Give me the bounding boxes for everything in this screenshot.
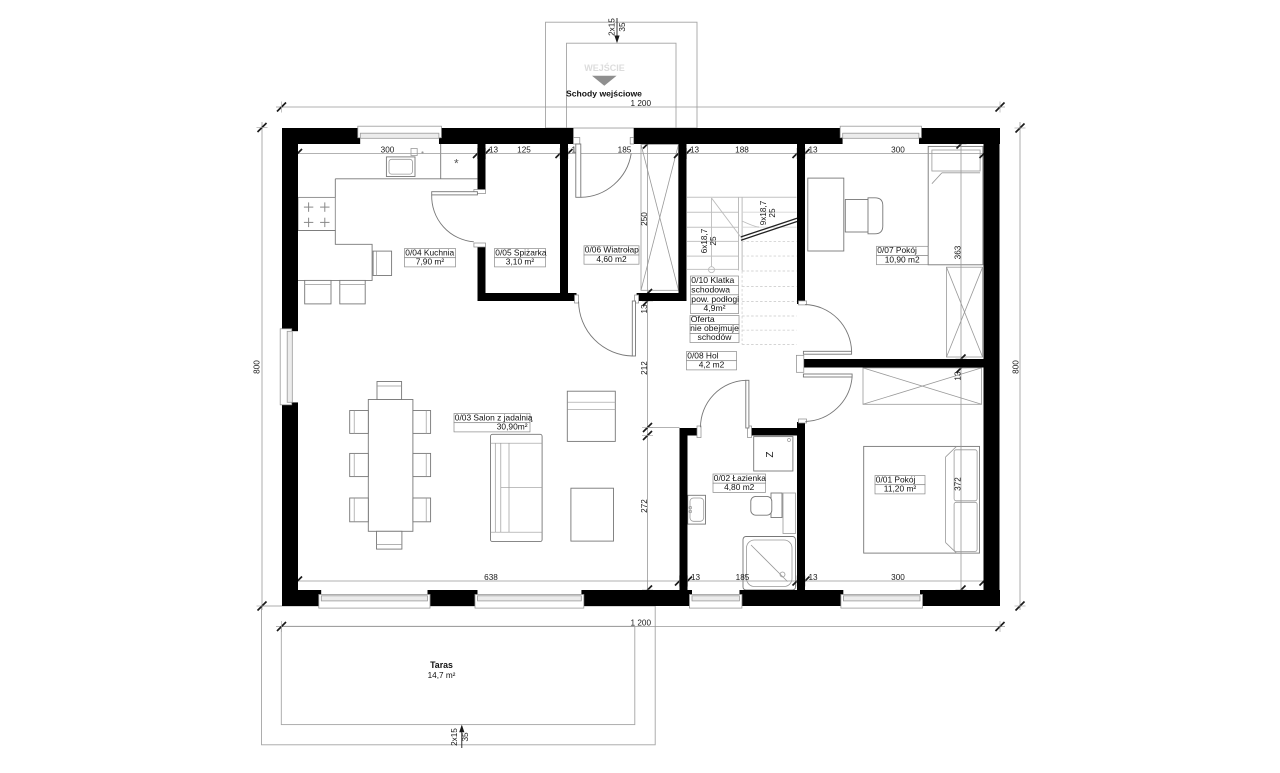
- svg-text:188: 188: [735, 146, 749, 155]
- svg-text:272: 272: [640, 499, 649, 513]
- svg-text:4,9m²: 4,9m²: [704, 303, 726, 313]
- svg-text:3,10 m²: 3,10 m²: [506, 257, 535, 267]
- svg-text:WEJŚCIE: WEJŚCIE: [584, 62, 625, 73]
- svg-text:638: 638: [484, 573, 498, 582]
- svg-text:7,90 m²: 7,90 m²: [416, 257, 445, 267]
- svg-text:9x18,7: 9x18,7: [759, 200, 768, 225]
- svg-text:800: 800: [1011, 360, 1020, 374]
- svg-text:212: 212: [640, 361, 649, 375]
- svg-text:300: 300: [891, 146, 905, 155]
- svg-text:185: 185: [736, 573, 750, 582]
- svg-text:Taras: Taras: [430, 660, 453, 670]
- svg-text:13: 13: [489, 146, 499, 155]
- svg-text:13: 13: [953, 371, 962, 381]
- svg-text:1 200: 1 200: [631, 99, 652, 108]
- svg-text:300: 300: [891, 573, 905, 582]
- svg-text:125: 125: [517, 146, 531, 155]
- svg-text:*: *: [454, 157, 459, 171]
- svg-text:250: 250: [640, 212, 649, 226]
- svg-text:25: 25: [768, 208, 777, 218]
- svg-text:14,7 m²: 14,7 m²: [428, 671, 456, 680]
- svg-text:4,80 m2: 4,80 m2: [724, 482, 755, 492]
- svg-text:30,90m²: 30,90m²: [497, 422, 528, 432]
- svg-text:11,20 m²: 11,20 m²: [884, 484, 917, 494]
- svg-text:13: 13: [809, 573, 819, 582]
- svg-text:13: 13: [640, 304, 649, 314]
- svg-text:10,90 m2: 10,90 m2: [885, 254, 920, 264]
- svg-text:Schody wejściowe: Schody wejściowe: [566, 88, 642, 98]
- svg-text:35: 35: [461, 732, 470, 742]
- svg-text:13: 13: [691, 573, 701, 582]
- svg-text:2x15: 2x15: [608, 18, 617, 36]
- svg-text:372: 372: [953, 477, 962, 491]
- svg-text:1 200: 1 200: [631, 619, 652, 628]
- svg-text:4,2 m2: 4,2 m2: [699, 360, 725, 370]
- svg-text:300: 300: [381, 146, 395, 155]
- svg-text:Z: Z: [765, 451, 776, 457]
- svg-text:25: 25: [709, 236, 718, 246]
- svg-text:35: 35: [618, 22, 627, 32]
- svg-text:13: 13: [809, 146, 819, 155]
- svg-text:800: 800: [253, 360, 262, 374]
- svg-text:185: 185: [618, 146, 632, 155]
- svg-text:363: 363: [953, 245, 962, 259]
- svg-text:2x15: 2x15: [450, 728, 459, 746]
- svg-text:schodów: schodów: [698, 332, 733, 342]
- svg-text:13: 13: [690, 146, 700, 155]
- svg-text:4,60 m2: 4,60 m2: [596, 254, 627, 264]
